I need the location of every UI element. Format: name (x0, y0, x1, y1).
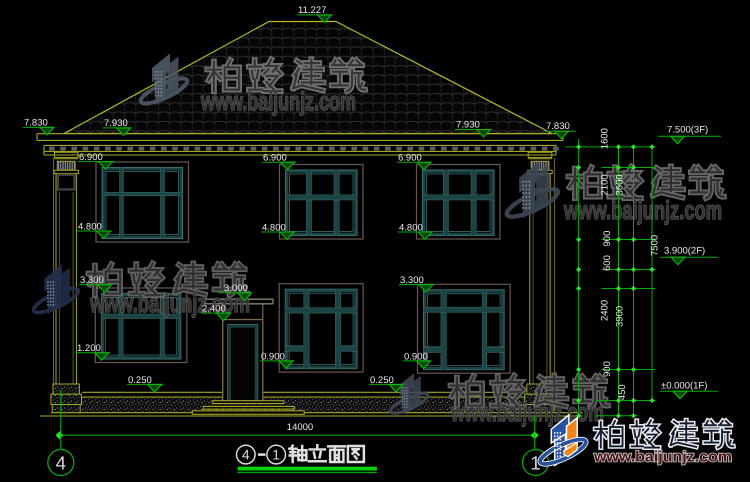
svg-text:www.baijunjz.com: www.baijunjz.com (450, 397, 604, 427)
svg-text:900: 900 (602, 231, 613, 247)
svg-text:7.500(3F): 7.500(3F) (667, 124, 708, 135)
svg-text:3600: 3600 (614, 174, 625, 195)
svg-text:www.baijunjz.com: www.baijunjz.com (563, 195, 722, 225)
svg-text:www.baijunjz.com: www.baijunjz.com (593, 449, 732, 466)
svg-text:4: 4 (242, 447, 250, 463)
svg-text:2100: 2100 (599, 174, 610, 195)
svg-text:4: 4 (56, 454, 67, 475)
svg-text:1600: 1600 (599, 128, 610, 149)
svg-text:www.baijunjz.com: www.baijunjz.com (200, 86, 356, 116)
svg-text:±0.000(1F): ±0.000(1F) (661, 380, 707, 391)
svg-text:3900: 3900 (614, 306, 625, 327)
svg-text:7.830: 7.830 (546, 121, 570, 132)
svg-text:450: 450 (617, 384, 628, 400)
svg-text:14000: 14000 (287, 422, 313, 433)
svg-text:2400: 2400 (599, 300, 610, 321)
svg-text:7500: 7500 (649, 235, 660, 256)
svg-text:900: 900 (602, 361, 613, 377)
svg-text:7.930: 7.930 (456, 120, 480, 131)
svg-text:600: 600 (602, 255, 613, 271)
svg-text:3.900(2F): 3.900(2F) (664, 245, 705, 256)
svg-text:1: 1 (272, 447, 280, 463)
